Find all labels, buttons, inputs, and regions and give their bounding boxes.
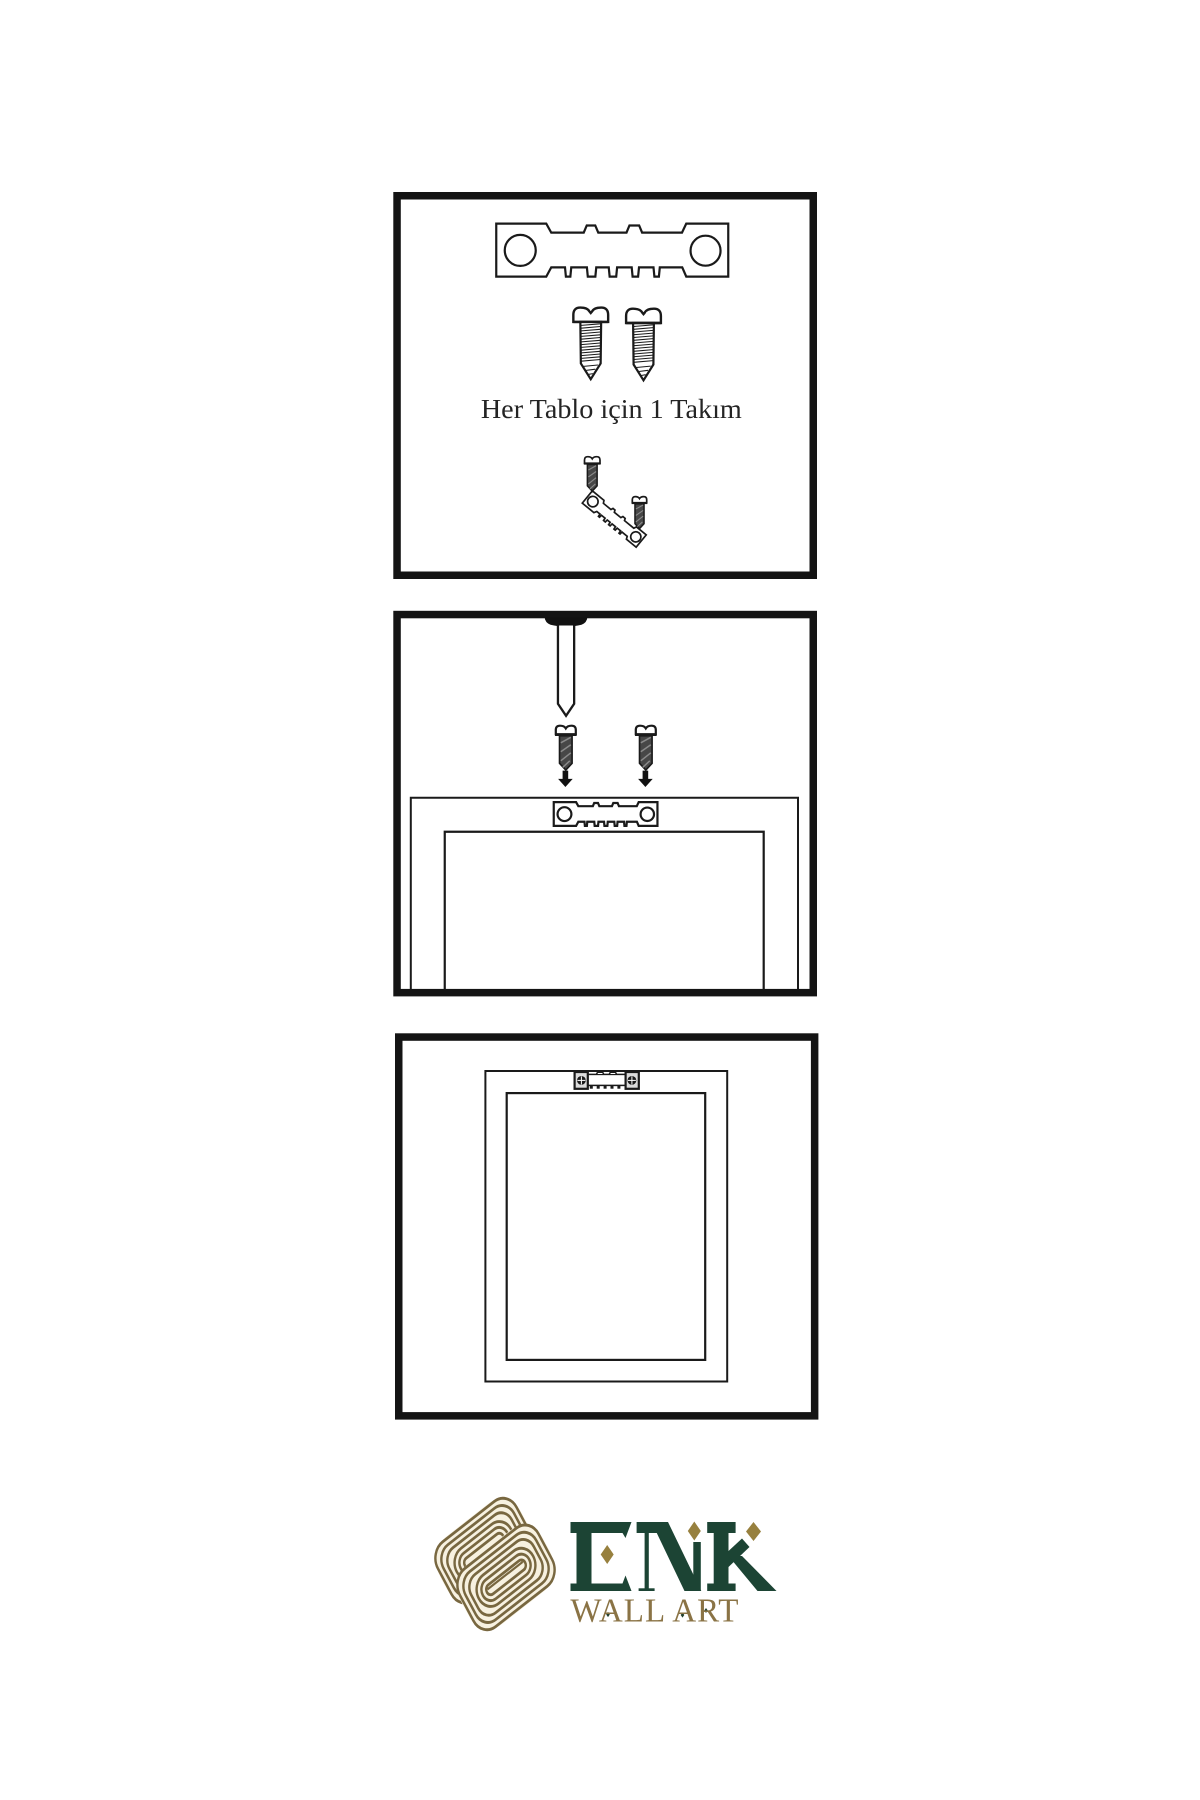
svg-text:Her Tablo için 1 Takım: Her Tablo için 1 Takım — [481, 393, 742, 424]
svg-text:WALL ART: WALL ART — [570, 1593, 739, 1630]
